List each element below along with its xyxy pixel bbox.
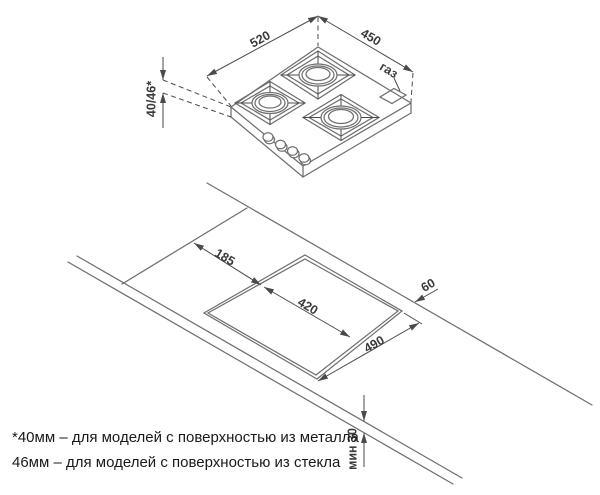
worktop-left-edge (122, 208, 247, 284)
dim-height-label: 40/46* (144, 81, 158, 117)
diagram-canvas: 520 450 40/46* газ (0, 0, 600, 495)
dim-420-label: 420 (295, 295, 320, 318)
cutout-outline (204, 255, 402, 379)
hob-installation-diagram: 520 450 40/46* газ (0, 0, 600, 495)
dim-520-label: 520 (248, 28, 273, 50)
dim-490-extension-right (404, 313, 422, 324)
dim-450-extension-right (411, 73, 413, 102)
dim-185-label: 185 (212, 246, 237, 269)
dim-450-label: 450 (358, 26, 383, 49)
dim-60-label: 60 (419, 276, 438, 295)
worktop-back-edge (207, 183, 592, 405)
footnote-line-1: *40мм – для моделей с поверхностью из ме… (12, 425, 359, 450)
footnote-line-2: 46мм – для моделей с поверхностью из сте… (12, 450, 340, 475)
dim-height-ref-bottom (163, 93, 231, 117)
dim-520-extension-left (207, 77, 231, 106)
